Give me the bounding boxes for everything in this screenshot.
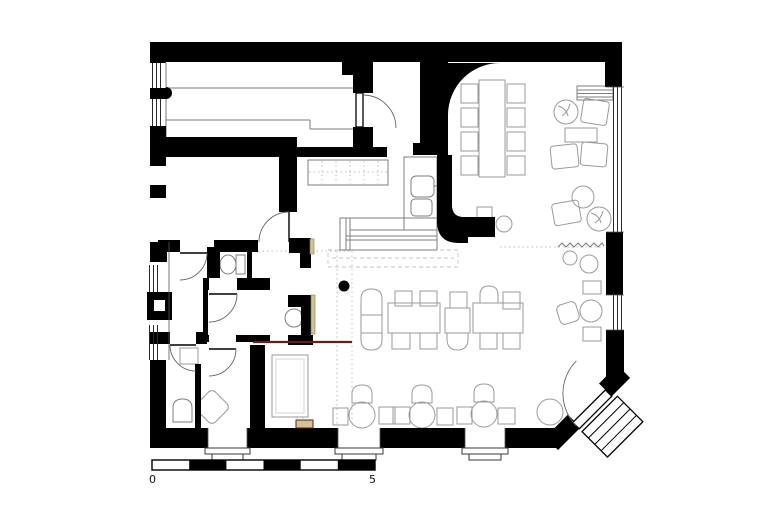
east-wall-table-group <box>555 281 602 341</box>
long-table-chairs <box>461 84 525 175</box>
chair <box>503 333 520 349</box>
sink-counter <box>404 157 438 230</box>
floor-plan-canvas: 0 5 <box>0 0 780 520</box>
lounge-chair <box>580 142 608 167</box>
toilet-cistern <box>236 255 245 274</box>
chair <box>503 292 520 309</box>
structural-column <box>339 281 350 292</box>
door-washroom <box>209 294 237 322</box>
bar-floor-mat <box>328 250 458 267</box>
chair <box>583 281 601 294</box>
round-table <box>349 402 375 428</box>
washbasin-icon <box>285 309 303 327</box>
long-table <box>479 80 505 177</box>
urinal-icon <box>173 399 192 422</box>
round-table <box>471 401 497 427</box>
curtain-zigzag <box>558 243 604 247</box>
hatch-door <box>296 420 313 428</box>
chair <box>450 292 467 308</box>
dining-table <box>473 303 523 333</box>
chair <box>395 291 412 306</box>
door-wc-lobby <box>180 253 207 280</box>
window-sill <box>205 428 250 460</box>
plant-icon <box>554 100 578 124</box>
window-sill <box>462 428 508 460</box>
chair <box>583 327 601 341</box>
scale-start-label: 0 <box>149 473 156 486</box>
door-lane-room <box>356 93 396 128</box>
chair <box>480 286 498 303</box>
round-table <box>537 399 563 425</box>
chimney-flue <box>154 300 165 311</box>
private-room-table <box>272 355 308 417</box>
sink-icon <box>411 199 432 216</box>
lounge-chair <box>551 200 581 226</box>
door-shower-room <box>209 349 236 376</box>
shelf <box>180 348 198 364</box>
dining-table <box>388 303 440 333</box>
window-tables <box>333 384 563 428</box>
lounge-table <box>565 128 597 142</box>
bench-seat <box>445 308 470 333</box>
plant-icon <box>587 207 611 231</box>
wood-door-leaf <box>310 239 314 254</box>
round-side-table <box>572 186 594 208</box>
wood-door-leaf <box>311 295 315 334</box>
lounge-chair <box>580 98 609 126</box>
back-counter <box>308 160 388 185</box>
bar-counter <box>340 218 437 250</box>
chair <box>555 300 580 325</box>
bench-seat <box>447 333 468 350</box>
door-urinal-room <box>170 345 196 371</box>
sink-icon <box>411 176 434 197</box>
scale-bar: 0 5 <box>149 460 376 486</box>
lane-room-lines <box>166 63 355 137</box>
chair <box>420 333 437 349</box>
window-sill <box>335 428 383 460</box>
floor-plan-drawing: 0 5 <box>0 0 780 520</box>
plant-pot <box>580 255 598 273</box>
lounge-chair <box>550 144 579 170</box>
chair <box>392 333 410 349</box>
dining-furniture <box>361 286 523 350</box>
rear-lounge-furniture <box>461 80 613 232</box>
plant-pot <box>563 251 577 265</box>
round-stool <box>496 216 512 232</box>
door-corridor-wc <box>259 210 289 242</box>
round-table <box>409 402 435 428</box>
window-glazing <box>153 63 161 88</box>
radiator-icon <box>577 86 613 100</box>
chair <box>420 291 437 306</box>
round-table <box>580 300 602 322</box>
bench-column <box>361 289 382 350</box>
toilet-icon <box>220 255 236 274</box>
chair <box>480 333 497 349</box>
scale-end-label: 5 <box>369 473 376 486</box>
